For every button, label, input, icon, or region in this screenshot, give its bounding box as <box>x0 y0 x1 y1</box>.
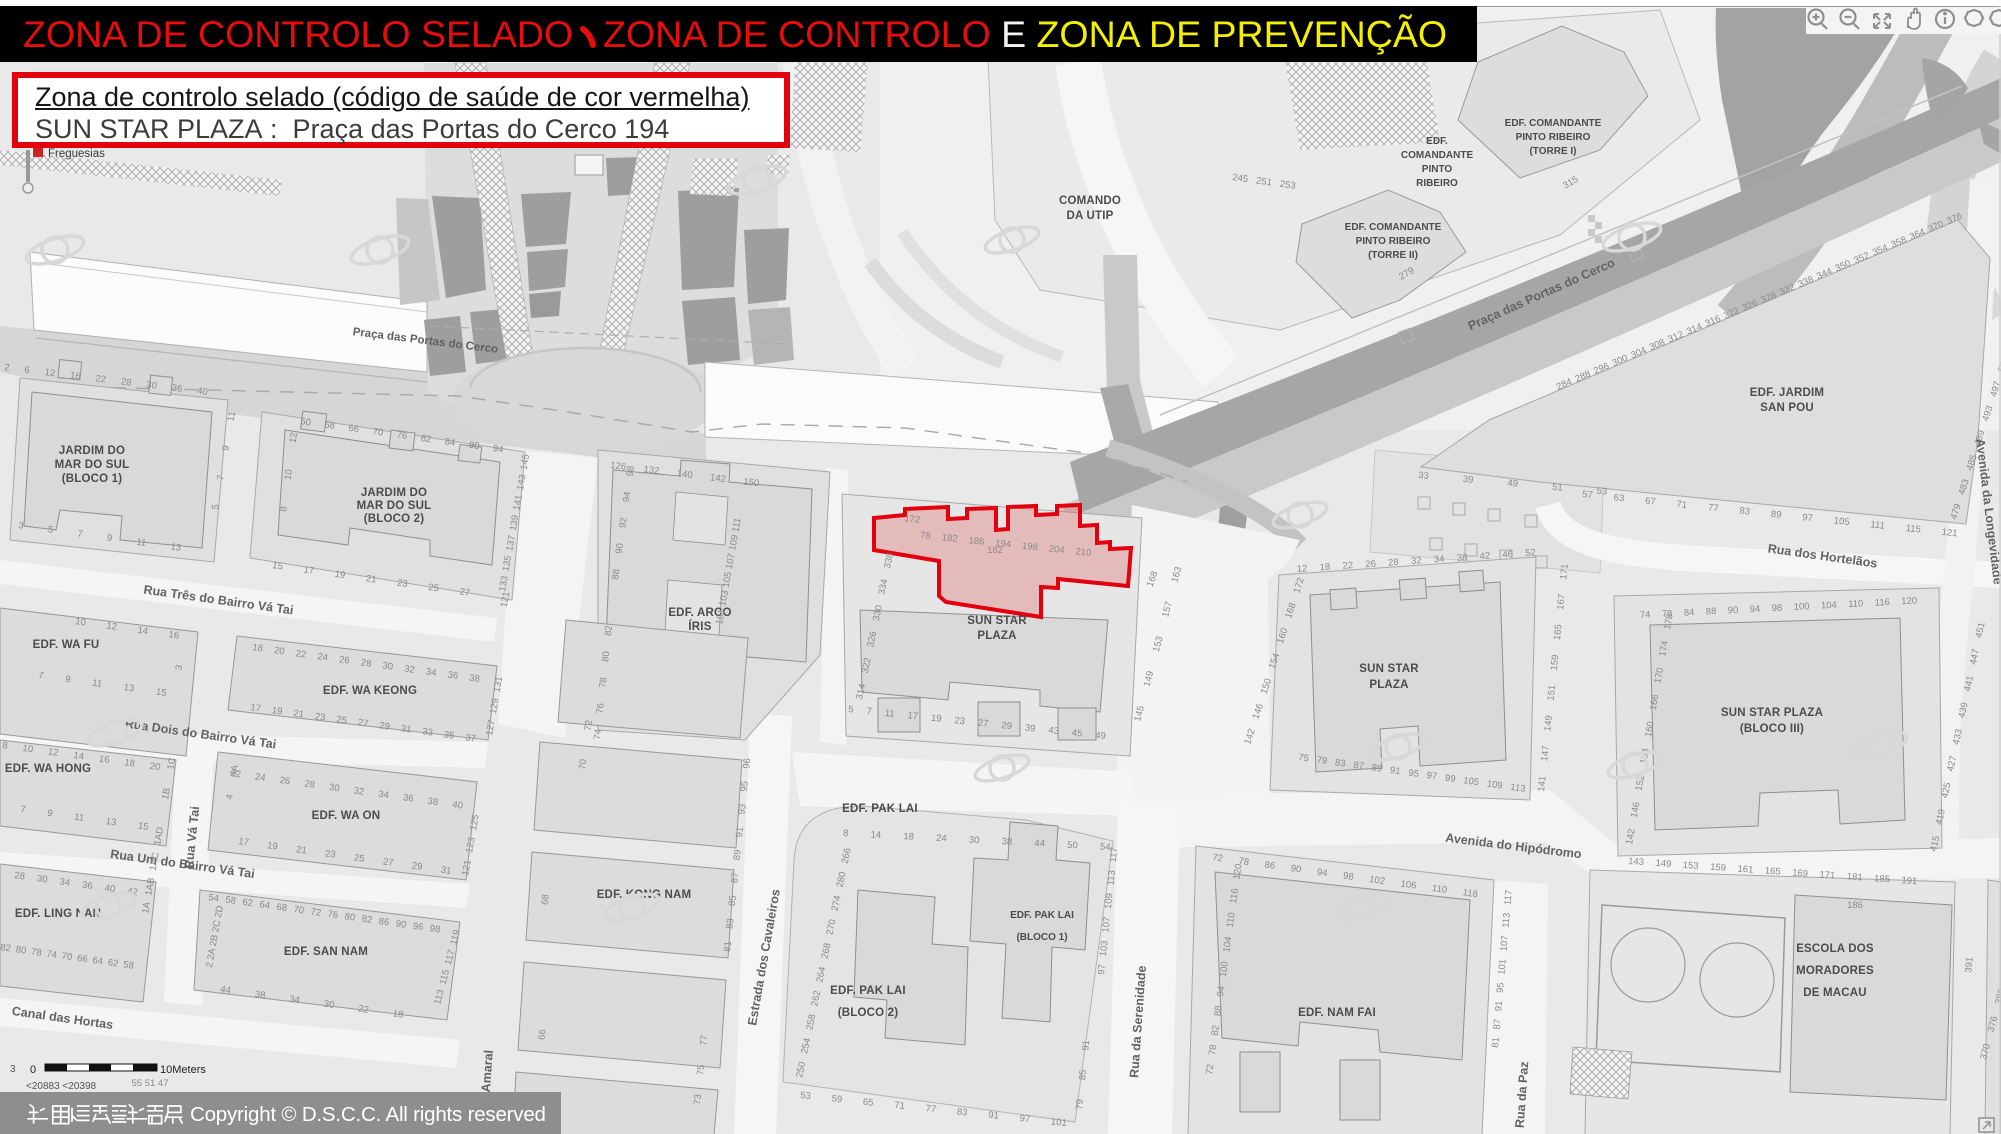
svg-text:SUN STAR PLAZA: SUN STAR PLAZA <box>1721 707 1823 719</box>
svg-text:3: 3 <box>10 1064 16 1075</box>
svg-text:SUN STAR: SUN STAR <box>967 615 1027 627</box>
svg-text:SAN POU: SAN POU <box>1760 402 1814 414</box>
svg-text:PINTO RIBEIRO: PINTO RIBEIRO <box>1516 132 1591 143</box>
svg-text:EDF.: EDF. <box>1426 136 1448 147</box>
svg-text:EDF. JARDIM: EDF. JARDIM <box>1750 387 1824 399</box>
svg-text:EDF. WA ON: EDF. WA ON <box>312 810 381 822</box>
svg-text:172: 172 <box>904 513 921 526</box>
svg-text:182: 182 <box>987 545 1003 556</box>
svg-text:(TORRE I): (TORRE I) <box>1529 146 1576 157</box>
svg-text:68: 68 <box>539 894 551 906</box>
svg-text:(BLOCO 1): (BLOCO 1) <box>1016 932 1067 943</box>
svg-text:EDF. PAK LAI: EDF. PAK LAI <box>842 803 918 815</box>
svg-text:EDF. SAN NAM: EDF. SAN NAM <box>284 946 368 958</box>
svg-text:PINTO RIBEIRO: PINTO RIBEIRO <box>1356 236 1431 247</box>
svg-text:Copyright © D.S.C.C. All right: Copyright © D.S.C.C. All rights reserved <box>190 1103 546 1126</box>
svg-text:SUN STAR: SUN STAR <box>1359 663 1419 675</box>
svg-text:EDF. COMANDANTE: EDF. COMANDANTE <box>1345 222 1442 233</box>
svg-text:Freguesias: Freguesias <box>48 148 105 160</box>
svg-text:EDF. PAK LAI: EDF. PAK LAI <box>830 985 906 997</box>
svg-text:EDF. WA HONG: EDF. WA HONG <box>5 763 91 775</box>
svg-text:EDF. WA FU: EDF. WA FU <box>33 639 100 651</box>
svg-text:MAR DO SUL: MAR DO SUL <box>55 459 130 471</box>
svg-text:ESCOLA DOS: ESCOLA DOS <box>1796 943 1874 955</box>
svg-text:0: 0 <box>30 1064 36 1076</box>
svg-text:EDF. COMANDANTE: EDF. COMANDANTE <box>1505 118 1602 129</box>
svg-text:EDF. PAK LAI: EDF. PAK LAI <box>1010 910 1074 921</box>
svg-text:MAR DO SUL: MAR DO SUL <box>357 500 432 512</box>
svg-text:JARDIM DO: JARDIM DO <box>59 445 125 457</box>
svg-text:(BLOCO III): (BLOCO III) <box>1740 723 1804 735</box>
svg-text:DA UTIP: DA UTIP <box>1067 210 1114 222</box>
svg-text:55 51 47: 55 51 47 <box>132 1078 169 1089</box>
svg-text:(BLOCO 2): (BLOCO 2) <box>838 1007 899 1019</box>
svg-text:COMANDO: COMANDO <box>1059 195 1121 207</box>
svg-text:EDF. WA KEONG: EDF. WA KEONG <box>323 685 417 697</box>
svg-text:(TORRE II): (TORRE II) <box>1368 250 1418 261</box>
svg-text:<20883 <20398: <20883 <20398 <box>26 1081 97 1092</box>
svg-text:MORADORES: MORADORES <box>1796 965 1874 977</box>
svg-text:COMANDANTE: COMANDANTE <box>1401 150 1474 161</box>
svg-text:RIBEIRO: RIBEIRO <box>1416 178 1458 189</box>
svg-text:(BLOCO 2): (BLOCO 2) <box>364 513 425 525</box>
svg-text:PINTO: PINTO <box>1422 164 1453 175</box>
svg-text:10Meters: 10Meters <box>160 1064 206 1076</box>
svg-text:186: 186 <box>1847 900 1863 911</box>
svg-text:PLAZA: PLAZA <box>1369 679 1408 691</box>
svg-text:JARDIM DO: JARDIM DO <box>361 487 427 499</box>
svg-text:ÍRIS: ÍRIS <box>688 620 711 633</box>
svg-text:PLAZA: PLAZA <box>977 630 1016 642</box>
svg-text:(BLOCO 1): (BLOCO 1) <box>62 473 123 485</box>
svg-text:66: 66 <box>536 1029 548 1041</box>
svg-text:EDF. NAM FAI: EDF. NAM FAI <box>1298 1007 1376 1019</box>
svg-text:391: 391 <box>1963 956 1975 973</box>
svg-text:DE MACAU: DE MACAU <box>1803 987 1867 999</box>
